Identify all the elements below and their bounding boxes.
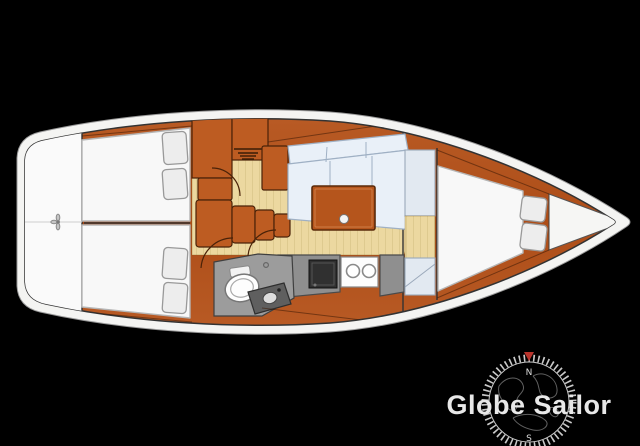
sink-basin-icon xyxy=(363,265,376,278)
pillow xyxy=(162,168,188,200)
aft-cabin-top xyxy=(82,128,190,221)
wardrobe xyxy=(405,150,435,216)
boat-floorplan-image: N S Globe Sailor xyxy=(0,0,640,446)
saloon-table xyxy=(312,186,375,230)
sink-basin-icon xyxy=(347,265,360,278)
vanity-seat xyxy=(405,258,435,295)
settee-armrest xyxy=(262,146,288,190)
compass-north-label: N xyxy=(526,368,533,378)
head-compartment xyxy=(214,254,294,316)
pillow xyxy=(162,131,188,165)
forward-cabin-floor xyxy=(405,216,435,258)
aft-cabin-bottom xyxy=(82,225,190,318)
stove-icon xyxy=(309,260,337,288)
forward-cabin-furniture xyxy=(405,150,435,295)
galley-counter-right xyxy=(380,255,404,296)
pillow xyxy=(520,196,548,223)
pillow xyxy=(162,282,188,314)
pillow xyxy=(162,247,188,280)
table-knob xyxy=(340,215,349,224)
boat-floorplan-svg: N S Globe Sailor xyxy=(0,0,640,446)
brand-text: Globe Sailor xyxy=(446,390,611,420)
pillow xyxy=(520,223,548,252)
compass-south-label: S xyxy=(526,434,532,444)
